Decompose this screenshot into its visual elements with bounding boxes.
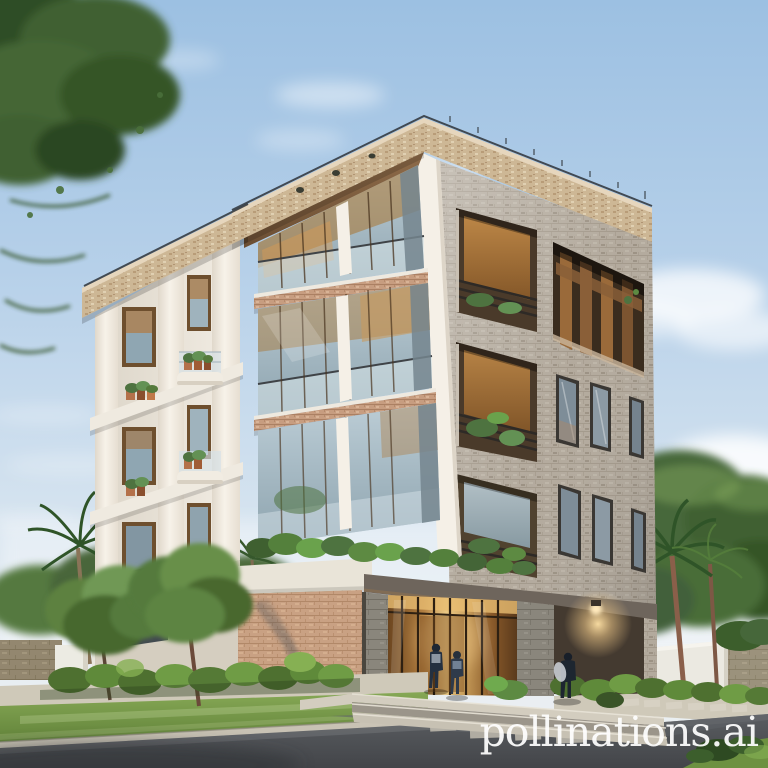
facade-pillar: [212, 234, 240, 568]
entrance-right-pier: [517, 601, 554, 696]
watermark-text: pollinations.ai: [480, 708, 759, 756]
scene-architectural-render: pollinations.ai: [0, 0, 768, 768]
facade-pillar: [95, 303, 118, 598]
sconce-fixture: [591, 600, 601, 606]
facade-pillar: [158, 266, 184, 582]
